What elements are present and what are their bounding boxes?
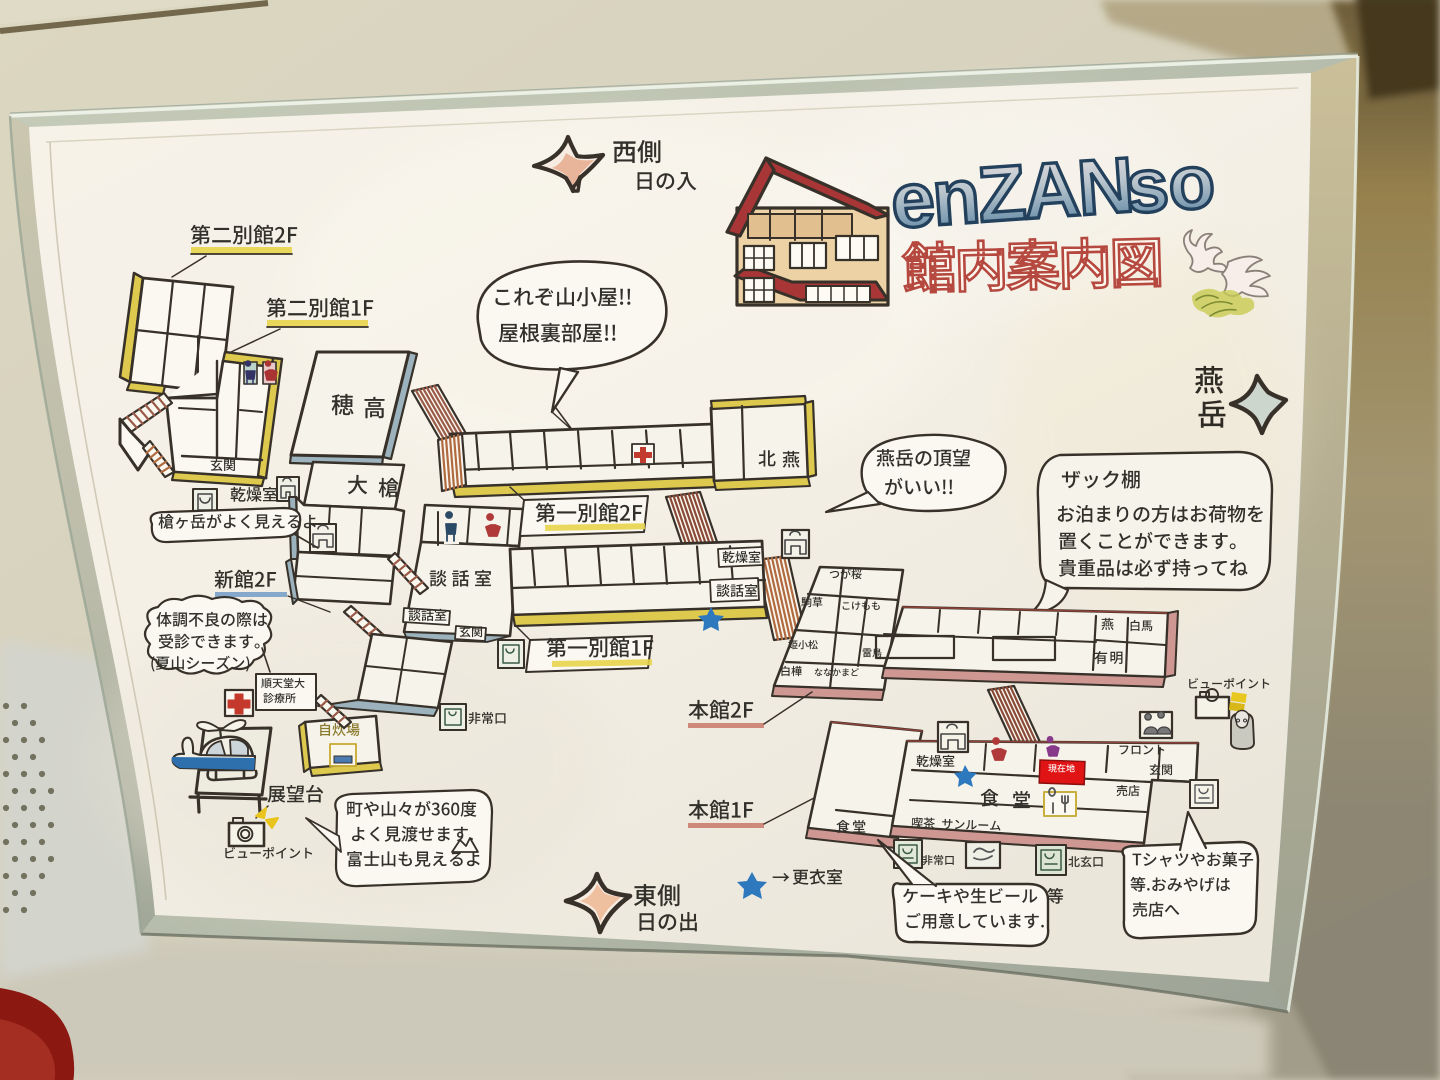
svg-text:so: so (1123, 139, 1217, 230)
svg-text:enZAN: enZAN (888, 140, 1135, 245)
